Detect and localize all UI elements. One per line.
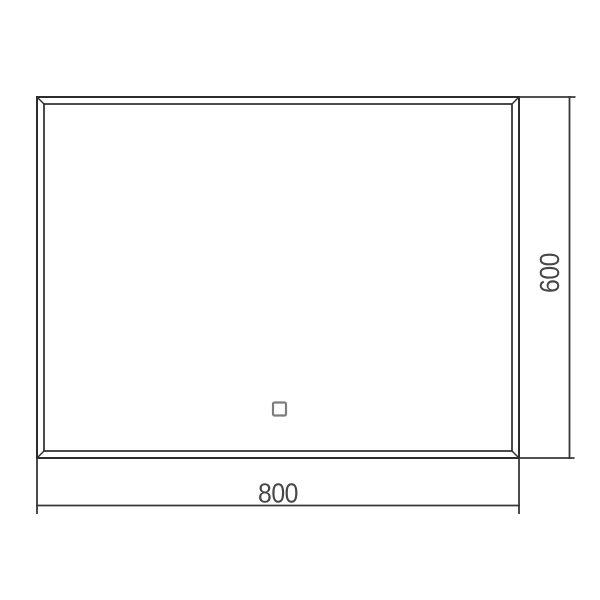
touch-sensor-icon [273, 403, 286, 416]
drawing-page: 800 600 [0, 0, 600, 600]
frame-miter-bottom-left [37, 451, 44, 458]
mirror-inner-frame [44, 104, 512, 451]
mirror-technical-drawing: 800 600 [0, 0, 600, 600]
frame-miter-top-right [512, 97, 519, 104]
frame-miter-top-left [37, 97, 44, 104]
mirror-body [37, 97, 519, 458]
frame-miter-bottom-right [512, 451, 519, 458]
width-dimension-label: 800 [258, 478, 298, 509]
height-dimension: 600 [519, 96, 576, 459]
height-dimension-label: 600 [534, 253, 565, 293]
width-dimension: 800 [36, 459, 520, 514]
